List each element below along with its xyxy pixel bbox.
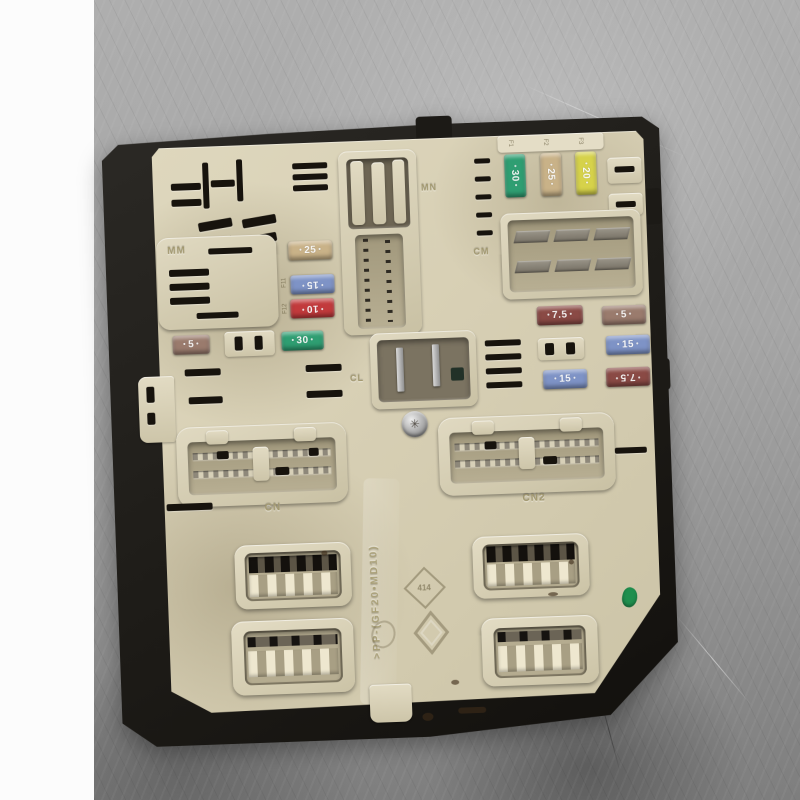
fuse-25a: 25 [540,153,563,197]
empty-fuse-slot [224,330,275,357]
relay-socket-cl [369,330,478,410]
fuse-ref-f11: F11 [281,278,287,288]
relay-socket-mm: MM [156,234,279,330]
fuse-20a: 20 [575,151,598,195]
label-cl: CL [350,373,364,384]
empty-fuse-slot [538,337,585,361]
fuse-ref-f2: F2 [542,139,548,146]
bottom-connector-b [231,618,356,696]
bottom-connector-d [481,615,599,687]
fuse-5a: 5 [172,335,210,355]
mold-mark-text: 414 [418,583,432,592]
fuse-15a: 15 [543,369,588,390]
vent-dash [615,447,647,454]
fuse-7-5a-inverted: 7.5 [606,366,651,387]
bottom-connector-c [472,533,590,599]
vent-slots-mid [474,158,498,255]
photo-canvas: MN F1 F2 F3 30 25 20 [0,0,800,800]
fuse-5a: 5 [602,305,647,326]
vent-slots-left-band [180,361,351,411]
label-mm: MM [167,245,186,257]
bottom-edge-tab [369,683,412,723]
fuse-7-5a: 7.5 [537,305,584,326]
photo-white-margin [0,0,94,800]
label-mn: MN [421,182,437,193]
fuse-ref-f3: F3 [577,137,583,144]
fuse-25a: 25 [288,240,333,261]
fuse-15a-inverted: 15 [290,274,335,295]
fuse-15a: 15 [606,334,651,355]
dirt-smudge [458,707,486,714]
connector-cn [176,422,349,508]
connector-mn [338,149,423,336]
fuse-30a: 30 [504,154,527,198]
bottom-connector-a [234,542,352,610]
label-cn2: CN2 [522,492,545,504]
vent-slots-center-right [485,339,527,400]
fuse-box: MN F1 F2 F3 30 25 20 [101,116,681,748]
label-cm: CM [473,246,489,257]
relay-socket-cm [500,209,643,300]
fuse-ref-f12: F12 [282,304,288,315]
fuse-30a: 30 [281,330,324,351]
torx-screw-glyph: ✳ [409,417,420,431]
renault-diamond-logo-icon [413,610,451,655]
label-cn: CN [265,502,282,514]
side-ear-tab [138,376,176,443]
right-tab-slots [607,157,642,184]
metal-scratch [675,614,753,707]
connector-cn2 [438,412,617,496]
fuse-10a-inverted: 10 [290,298,335,319]
fuse-ref-f1: F1 [507,140,513,147]
vent-slots-top [292,162,329,193]
